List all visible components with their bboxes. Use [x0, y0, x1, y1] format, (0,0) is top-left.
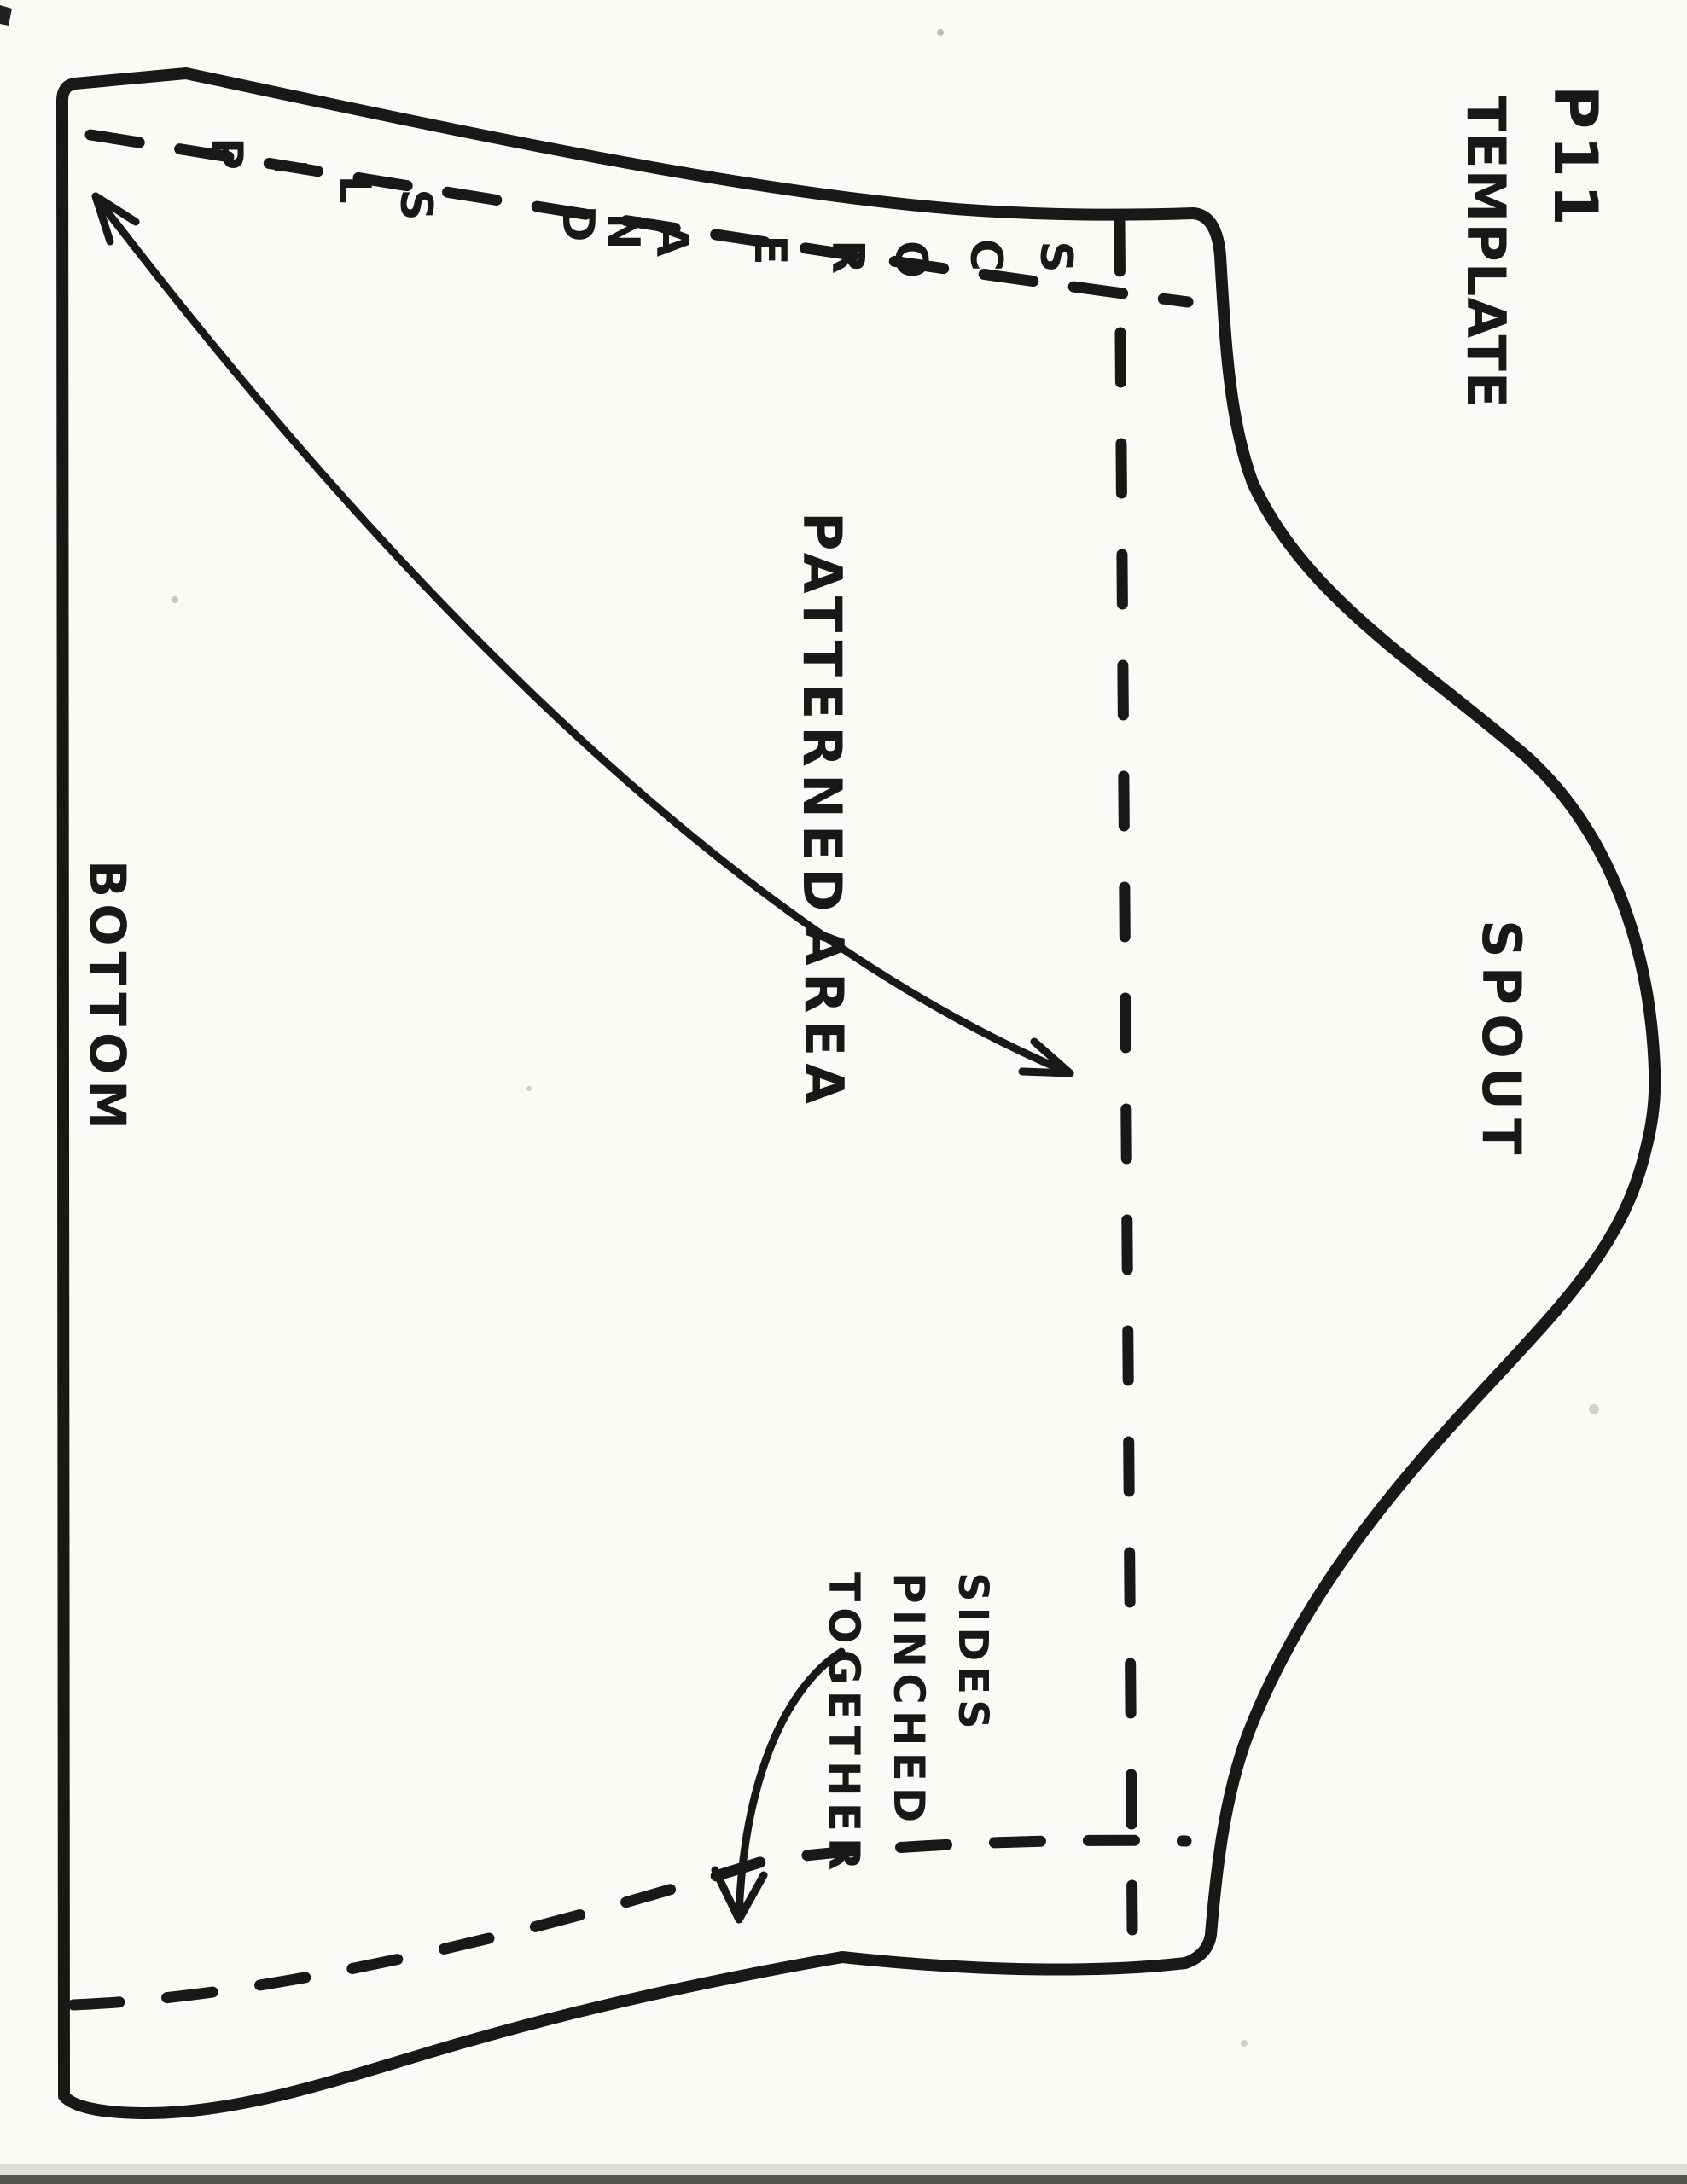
score-slip-letter: I	[264, 159, 315, 175]
label-spout: SPOUT	[1470, 920, 1533, 1163]
label-bottom-edge: BOTTOM	[79, 860, 137, 1136]
page-title-code: P11	[1540, 85, 1610, 233]
label-pinched: PINCHED	[884, 1572, 934, 1828]
scanned-template-page: P11 TEMPLATE BOTTOM PATTERNED AREA SPOUT…	[0, 0, 1687, 2184]
patterned-area-arrow	[96, 196, 1070, 1073]
score-slip-letter: N	[597, 212, 649, 250]
scan-corner-mark	[0, 5, 12, 26]
score-slip-letter: D	[552, 205, 603, 241]
pinch-dashed-line	[73, 1840, 1186, 2005]
score-slip-letter: S	[1030, 241, 1081, 272]
score-slip-letter: P	[201, 137, 252, 170]
score-slip-letter: E	[744, 235, 795, 265]
score-slip-letter: L	[329, 175, 380, 203]
label-sides: SIDES	[949, 1572, 997, 1734]
template-drawing: P11 TEMPLATE BOTTOM PATTERNED AREA SPOUT…	[0, 0, 1687, 2184]
score-slip-letter: A	[646, 223, 697, 257]
score-slip-letter: S	[390, 189, 441, 220]
label-together: TOGETHER	[819, 1572, 869, 1876]
score-slip-letter: C	[960, 239, 1011, 271]
label-patterned: PATTERNED	[791, 512, 853, 919]
score-slip-letter: O	[885, 241, 936, 278]
fold-dashed-line	[1120, 222, 1132, 1930]
label-area: AREA	[793, 925, 855, 1111]
page-title-word: TEMPLATE	[1455, 96, 1517, 409]
scan-edge-shadow	[0, 2164, 1687, 2175]
scan-edge-strip	[0, 2175, 1687, 2184]
score-slip-letter: R	[822, 240, 873, 274]
